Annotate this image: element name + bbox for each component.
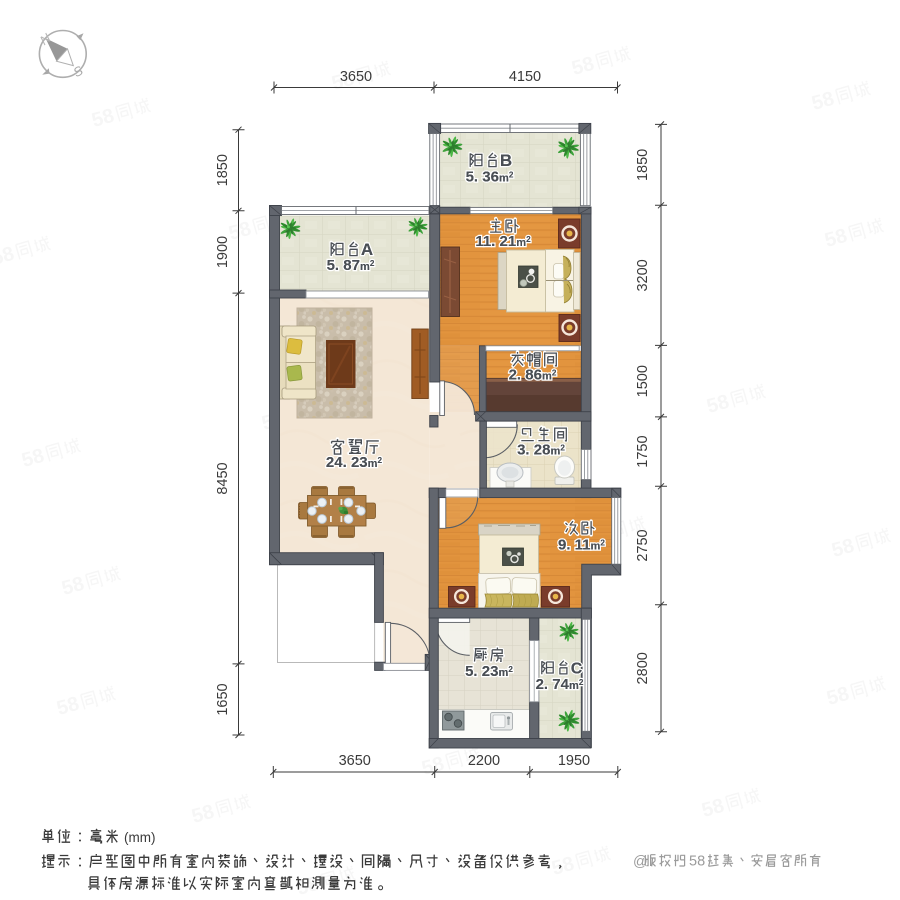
svg-text:B: B bbox=[500, 151, 512, 170]
svg-text:C: C bbox=[571, 660, 583, 677]
svg-text:(mm): (mm) bbox=[124, 830, 155, 845]
svg-text:3650: 3650 bbox=[339, 753, 371, 769]
svg-text:1850: 1850 bbox=[215, 154, 231, 186]
svg-text:4150: 4150 bbox=[509, 69, 541, 85]
svg-text:1950: 1950 bbox=[558, 753, 590, 769]
svg-text:2800: 2800 bbox=[635, 652, 651, 684]
svg-text:2200: 2200 bbox=[468, 753, 500, 769]
svg-text:3200: 3200 bbox=[635, 259, 651, 291]
svg-text:8450: 8450 bbox=[215, 462, 231, 494]
svg-text:3650: 3650 bbox=[340, 69, 372, 85]
svg-text:1750: 1750 bbox=[635, 435, 651, 467]
svg-text:1900: 1900 bbox=[215, 236, 231, 268]
svg-text:58: 58 bbox=[689, 854, 705, 870]
svg-text:1850: 1850 bbox=[635, 149, 651, 181]
svg-text:1650: 1650 bbox=[215, 683, 231, 715]
svg-text:2750: 2750 bbox=[635, 529, 651, 561]
svg-text:1500: 1500 bbox=[635, 365, 651, 397]
svg-text:A: A bbox=[361, 240, 373, 259]
